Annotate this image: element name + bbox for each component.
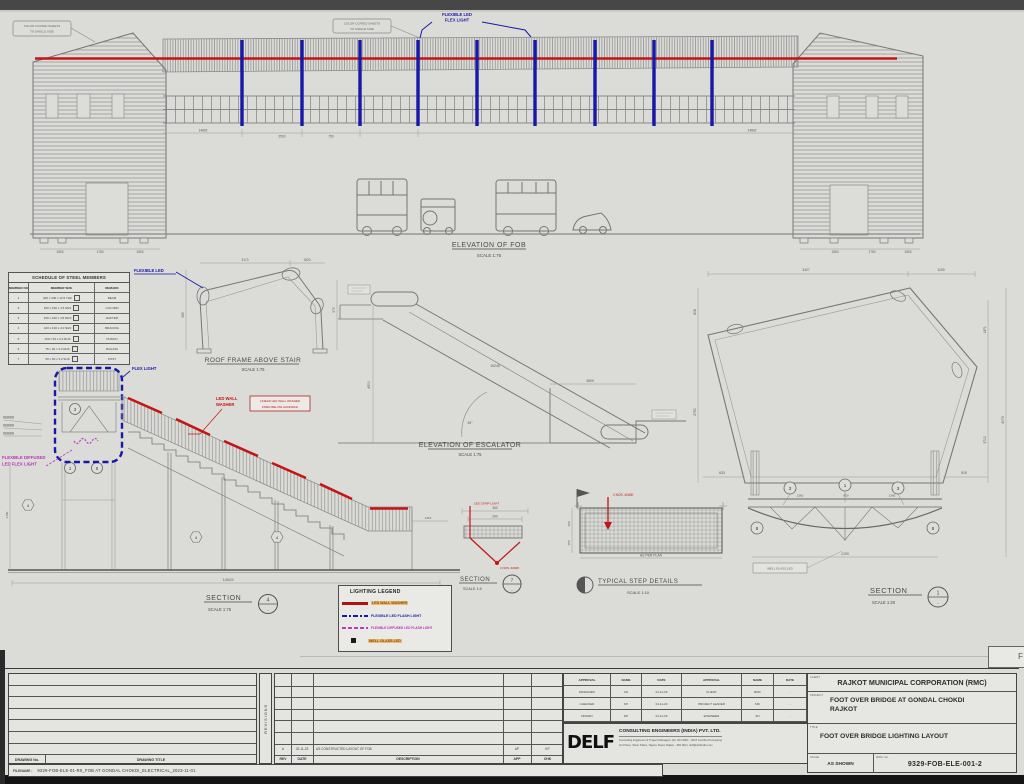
drawing-title: FOOT OVER BRIDGE LIGHTING LAYOUT <box>820 733 1016 740</box>
project-name-line2: RAJKOT <box>830 705 1016 714</box>
roof-note-mid: COLOR COATED SHEETS TO SINGLE SIDE <box>333 19 420 38</box>
svg-text:150: 150 <box>567 540 571 545</box>
svg-text:LED WALL: LED WALL <box>216 396 238 401</box>
flexible-led-swatch <box>342 615 368 617</box>
title-block: DRAWING No. DRAWING TITLE REVISIONS A 02… <box>5 668 1019 777</box>
well-glass-note: WELL GLASS LED <box>753 551 842 573</box>
svg-text:1500: 1500 <box>831 250 838 254</box>
revisions-table: A 02-11-23 AS CONSTRUCTED LAYOUT OF FOB … <box>274 673 563 764</box>
car-icon <box>573 213 611 234</box>
svg-text:1190: 1190 <box>937 268 944 272</box>
drawing-index-table: DRAWING No. DRAWING TITLE <box>8 673 257 764</box>
svg-text:4073: 4073 <box>1001 416 1005 424</box>
svg-text:WELL GLASS LED: WELL GLASS LED <box>767 567 793 571</box>
consultant-address: 2nd Floor, Silver Plaza, Tagore Road, Ra… <box>619 743 722 747</box>
svg-text:ELEVATION OF FOB: ELEVATION OF FOB <box>452 242 526 249</box>
flex-led-top-label: FLEXIBLE LED FLEX LIGHT <box>420 12 531 38</box>
svg-text:975: 975 <box>332 307 336 313</box>
consultant-block: DELF CONSULTING ENGINEERS (INDIA) PVT. L… <box>563 723 808 764</box>
svg-text:300: 300 <box>567 521 571 526</box>
drawing-number: 9329-FOB-ELE-001-2 <box>874 761 1016 768</box>
index-empty-row <box>9 732 256 744</box>
project-name-line1: FOOT OVER BRIDGE AT GONDAL CHOKDI <box>830 696 1016 705</box>
left-tower <box>33 33 166 243</box>
drawing-sheet: 14802 2500 750 14802 15001750 1500 15001… <box>0 0 1024 784</box>
client-name: RAJKOT MUNICIPAL CORPORATION (RMC) <box>808 674 1016 692</box>
svg-text:633: 633 <box>719 471 725 475</box>
stair-led-dashes <box>128 398 408 509</box>
bus-icon <box>357 179 407 236</box>
step-section: 360 290 LED STRIP LIGHT 2 NOS. 4000K SEC… <box>459 502 528 594</box>
svg-text:FLEXIBLE LED: FLEXIBLE LED <box>442 12 472 17</box>
schedule-row: 3 150 x 100 x 4.5 RHS RAFTER <box>9 314 129 324</box>
schedule-row: 4 100 x 100 x 4.0 SHS BRACING <box>9 324 129 334</box>
svg-text:-: - <box>937 601 939 606</box>
schedule-row: 2 150 x 150 x 4.5 SHS COLUMN <box>9 303 129 313</box>
svg-text:1500: 1500 <box>56 250 63 254</box>
jeep-icon <box>421 199 455 235</box>
svg-text:TYPICAL STEP DETAILS: TYPICAL STEP DETAILS <box>598 578 678 585</box>
flex-diffused-squiggle <box>74 439 98 444</box>
flex-light-stair-label: FLEX LIGHT <box>123 366 157 377</box>
client-row: CLIENT RAJKOT MUNICIPAL CORPORATION (RMC… <box>808 674 1016 692</box>
fob-elevation: 14802 2500 750 14802 15001750 1500 15001… <box>13 12 923 258</box>
scale-dwg-row: SCALE AS SHOWN DWG. No. 9329-FOB-ELE-001… <box>808 754 1016 773</box>
svg-text:ELEVATION OF ESCALATOR: ELEVATION OF ESCALATOR <box>419 442 521 449</box>
schedule-row: 7 50 x 50 x 3.2 SHS POST <box>9 354 129 363</box>
svg-text:AS PER PLAN: AS PER PLAN <box>640 554 663 558</box>
member-shape-icon <box>73 336 79 342</box>
member-shape-icon <box>73 305 79 311</box>
svg-text:1360: 1360 <box>797 494 804 498</box>
lighting-legend: LIGHTING LEGEND LED WALL WASHER FLEXIBLE… <box>338 585 452 652</box>
steel-members-schedule: SCHEDULE OF STEEL MEMBERS MEMBER NO MEMB… <box>8 272 130 365</box>
roof-note-left: COLOR COATED SHEETS TO SINGLE SIDE <box>13 21 95 42</box>
svg-text:290: 290 <box>492 515 498 519</box>
corner-box: F <box>988 646 1024 668</box>
svg-text:SCALE 1:75: SCALE 1:75 <box>458 452 482 457</box>
client-project-block: CLIENT RAJKOT MUNICIPAL CORPORATION (RMC… <box>807 673 1017 773</box>
schedule-title: SCHEDULE OF STEEL MEMBERS <box>9 273 129 283</box>
svg-text:FLEX LIGHT: FLEX LIGHT <box>132 366 157 371</box>
svg-text:3702: 3702 <box>983 436 987 444</box>
svg-text:10245: 10245 <box>490 364 500 368</box>
scale-cell: SCALE AS SHOWN <box>808 754 874 773</box>
pentagon-section: 31 38 8 3427 1190 808 2790 1471 3702 407… <box>693 268 1006 607</box>
svg-text:3427: 3427 <box>802 268 810 272</box>
bus2-icon <box>496 180 556 236</box>
svg-text:SCALE 1:10: SCALE 1:10 <box>627 590 650 595</box>
svg-text:1471: 1471 <box>983 326 987 334</box>
member-shape-icon <box>74 295 80 301</box>
step-details: 2 NOS. 4000K 300 150 AS PER PLAN TYPICAL… <box>567 489 727 595</box>
project-row: PROJECT FOOT OVER BRIDGE AT GONDAL CHOKD… <box>808 692 1016 724</box>
svg-text:TO SINGLE SIDE: TO SINGLE SIDE <box>30 30 54 34</box>
title-row: TITLE FOOT OVER BRIDGE LIGHTING LAYOUT <box>808 724 1016 754</box>
svg-text:SECTION: SECTION <box>206 595 241 602</box>
section7-label: SECTION SCALE 1:5 7 - <box>459 575 521 593</box>
fob-view-label: ELEVATION OF FOB SCALE 1:75 <box>452 242 526 258</box>
index-empty-row <box>9 744 256 756</box>
svg-text:2 NOS. 4000K: 2 NOS. 4000K <box>613 493 634 497</box>
svg-text:4509: 4509 <box>586 379 594 383</box>
svg-text:14802: 14802 <box>748 129 757 133</box>
flex-diffused-label: FLEXIBLE DIFFUSED LED FLEX LIGHT <box>2 450 72 467</box>
flexible-diffused-swatch <box>342 627 368 629</box>
svg-text:45°: 45° <box>467 421 473 425</box>
well-glass-led-swatch <box>351 638 356 643</box>
fob-dimensions <box>40 129 920 249</box>
svg-text:830: 830 <box>843 494 848 498</box>
dwg-cell: DWG. No. 9329-FOB-ELE-001-2 <box>874 754 1016 773</box>
index-empty-row <box>9 674 256 686</box>
index-empty-row <box>9 697 256 709</box>
svg-text:LINEAR LED WALL WASHER: LINEAR LED WALL WASHER <box>260 399 301 403</box>
index-empty-row <box>9 709 256 721</box>
svg-text:SECTION: SECTION <box>870 586 908 595</box>
svg-text:1520: 1520 <box>303 258 310 262</box>
svg-text:SCALE 1:75: SCALE 1:75 <box>241 367 265 372</box>
svg-text:1360: 1360 <box>889 494 896 498</box>
escalator-view-label: ELEVATION OF ESCALATOR SCALE 1:75 <box>419 442 521 457</box>
flex-led-mid-label: FLEXIBLE LED <box>134 268 203 288</box>
svg-text:TO SINGLE SIDE: TO SINGLE SIDE <box>350 27 374 31</box>
svg-text:2190: 2190 <box>841 552 849 556</box>
svg-text:2500: 2500 <box>278 135 285 139</box>
legend-title: LIGHTING LEGEND <box>350 589 448 595</box>
step-details-label: TYPICAL STEP DETAILS SCALE 1:10 <box>577 577 702 595</box>
legend-item: FLEXIBLE LED FLASH LIGHT <box>342 610 448 623</box>
member-shape-icon <box>73 315 79 321</box>
schedule-header: MEMBER NO MEMBER SIZE REMARK <box>9 283 129 293</box>
svg-text:14025: 14025 <box>222 577 234 582</box>
filename-value: 9329-FOB-ELE-01-R0_FOB AT GONDAL CHOKDI_… <box>37 768 195 773</box>
drawing-linework: 14802 2500 750 14802 15001750 1500 15001… <box>0 0 1024 784</box>
section1-label: SECTION SCALE 1:20 1 - <box>868 586 948 607</box>
svg-text:FLEXIBLE LED: FLEXIBLE LED <box>134 268 164 273</box>
svg-text:1750: 1750 <box>96 250 103 254</box>
svg-text:750: 750 <box>328 135 334 139</box>
escalator-view: 10245 4500 4509 45° ELEVATION OF ESCALAT… <box>338 285 686 457</box>
sheet-border-line <box>300 656 988 657</box>
svg-text:2790: 2790 <box>693 408 697 416</box>
svg-text:-: - <box>267 608 269 613</box>
svg-text:LED STRIP LIGHT: LED STRIP LIGHT <box>474 502 499 506</box>
scale-value: AS SHOWN <box>808 762 873 767</box>
svg-text:1: 1 <box>937 591 940 597</box>
svg-text:1500: 1500 <box>136 250 143 254</box>
revisions-strip: REVISIONS <box>259 673 272 764</box>
schedule-row: 6 75 x 40 x 3.2 RHS RAILING <box>9 344 129 354</box>
member-shape-icon <box>72 356 78 362</box>
vehicles <box>357 179 611 236</box>
svg-text:915: 915 <box>961 471 967 475</box>
led-wall-washer-label: LED WALL WASHER LINEAR LED WALL WASHER F… <box>188 396 310 434</box>
svg-text:FLEXIBLE DIFFUSED: FLEXIBLE DIFFUSED <box>2 455 45 460</box>
svg-text:3170: 3170 <box>241 258 248 262</box>
frame-view-label: ROOF FRAME ABOVE STAIR SCALE 1:75 <box>205 357 301 372</box>
roof-frame-view: 3170 1520 965 975 FLEXIBLE LED ROOF FRAM… <box>134 258 337 372</box>
index-empty-row <box>9 686 256 698</box>
svg-text:360: 360 <box>492 506 498 510</box>
index-empty-row <box>9 720 256 732</box>
consultant-tagline: Consulting Engineers & Project Managers … <box>619 736 722 742</box>
legend-item: LED WALL WASHER <box>342 597 448 610</box>
svg-text:1750: 1750 <box>868 250 875 254</box>
schedule-row: 1 400 x 200 x 12.5 THK BEAM <box>9 293 129 303</box>
svg-text:4500: 4500 <box>367 381 371 389</box>
svg-text:COLOR COATED SHEETS: COLOR COATED SHEETS <box>344 22 381 26</box>
svg-text:SCALE 1:20: SCALE 1:20 <box>872 600 896 605</box>
right-tower <box>793 33 923 243</box>
svg-text:LED FLEX LIGHT: LED FLEX LIGHT <box>2 462 37 467</box>
svg-text:FLEX LIGHT: FLEX LIGHT <box>445 18 470 23</box>
svg-text:965: 965 <box>181 312 185 318</box>
svg-text:808: 808 <box>693 309 697 315</box>
member-shape-icon <box>72 346 78 352</box>
filename-bar: FILENAME : 9329-FOB-ELE-01-R0_FOB AT GON… <box>8 764 663 777</box>
svg-text:SCALE 1:75: SCALE 1:75 <box>208 607 232 612</box>
svg-text:4: 4 <box>267 598 270 604</box>
member-shape-icon <box>73 325 79 331</box>
svg-text:-: - <box>511 588 513 593</box>
svg-text:1500: 1500 <box>904 250 911 254</box>
legend-item: FLEXIBLE DIFFUSED LED FLASH LIGHT <box>342 622 448 635</box>
svg-text:1415: 1415 <box>425 516 432 520</box>
svg-text:SECTION: SECTION <box>460 577 490 583</box>
svg-text:SCALE 1:75: SCALE 1:75 <box>477 253 502 258</box>
section4-label: SECTION SCALE 1:75 4 - <box>204 595 278 614</box>
approval-table: APPROVAL NAME DATE APPROVAL NAME DATE DE… <box>563 673 808 723</box>
svg-text:COLOR COATED SHEETS: COLOR COATED SHEETS <box>24 24 61 28</box>
svg-text:7: 7 <box>511 578 514 584</box>
stair-section: 3 1 5 4 <box>2 366 460 614</box>
legend-item: WELL GLASS LED <box>342 635 448 648</box>
svg-text:FIXED BELOW HANDRAIL: FIXED BELOW HANDRAIL <box>262 405 299 409</box>
schedule-row: 5 100 x 50 x 3.2 RHS PURLIN <box>9 334 129 344</box>
consultant-name: CONSULTING ENGINEERS (INDIA) PVT. LTD. <box>619 729 722 734</box>
svg-text:3150: 3150 <box>5 511 9 518</box>
svg-text:14802: 14802 <box>199 129 208 133</box>
svg-text:2 NOS. 4000K: 2 NOS. 4000K <box>500 566 519 570</box>
svg-text:ROOF FRAME ABOVE STAIR: ROOF FRAME ABOVE STAIR <box>205 357 301 364</box>
svg-text:WASHER: WASHER <box>216 402 234 407</box>
svg-text:SCALE 1:5: SCALE 1:5 <box>463 587 482 591</box>
led-wall-washer-swatch <box>342 602 368 605</box>
delf-logo: DELF <box>567 726 614 761</box>
